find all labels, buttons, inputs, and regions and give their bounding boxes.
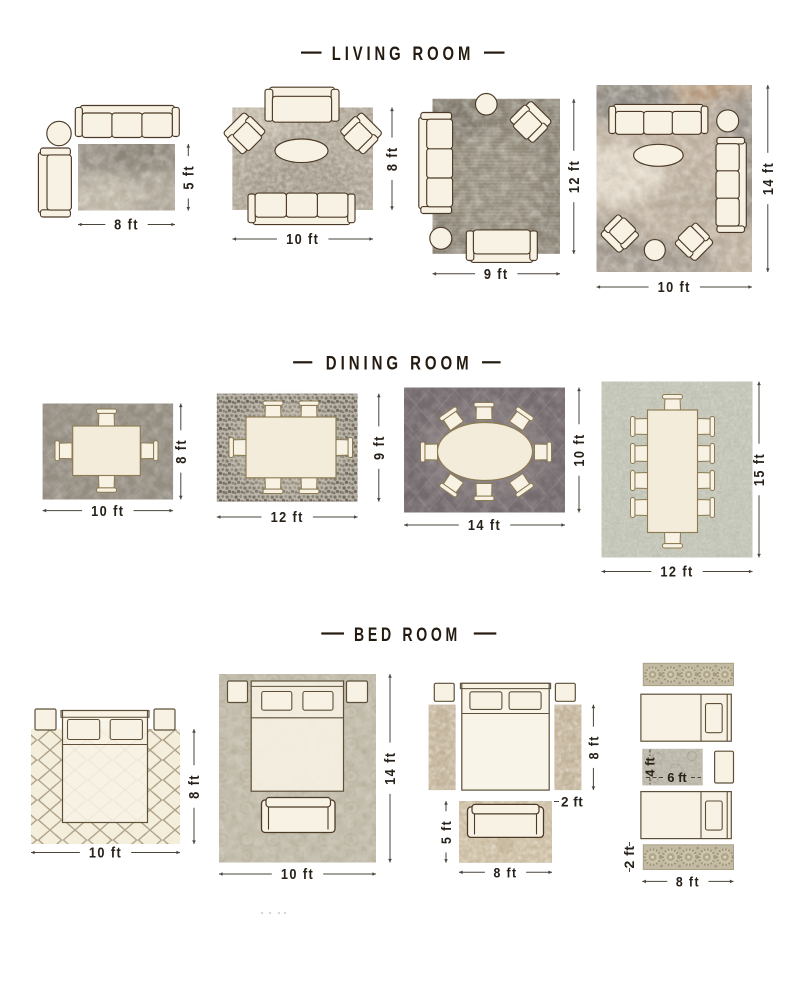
- svg-text:15 ft: 15 ft: [751, 453, 767, 486]
- svg-text:9 ft: 9 ft: [484, 266, 509, 282]
- svg-text:5 ft: 5 ft: [438, 820, 454, 844]
- svg-text:14 ft: 14 ft: [468, 517, 501, 533]
- svg-text:8 ft: 8 ft: [186, 774, 202, 799]
- svg-text:10 ft: 10 ft: [571, 433, 587, 466]
- svg-text:10 ft: 10 ft: [286, 231, 319, 247]
- svg-text:10 ft: 10 ft: [281, 866, 314, 882]
- svg-text:8 ft: 8 ft: [676, 874, 700, 890]
- svg-text:LIVING ROOM: LIVING ROOM: [332, 43, 474, 64]
- svg-text:10 ft: 10 ft: [89, 845, 122, 861]
- svg-text:8 ft: 8 ft: [493, 865, 517, 881]
- svg-text:DINING ROOM: DINING ROOM: [326, 353, 473, 374]
- svg-text:14 ft: 14 ft: [760, 162, 776, 195]
- svg-text:12 ft: 12 ft: [660, 564, 693, 580]
- svg-text:5 ft: 5 ft: [181, 165, 197, 190]
- svg-text:6 ft: 6 ft: [667, 770, 687, 785]
- svg-text:8 ft: 8 ft: [173, 439, 189, 464]
- svg-text:12 ft: 12 ft: [271, 509, 304, 525]
- svg-text:2 ft: 2 ft: [561, 795, 583, 810]
- svg-text:10 ft: 10 ft: [91, 503, 124, 519]
- svg-text:12 ft: 12 ft: [566, 160, 582, 193]
- svg-text:2 ft: 2 ft: [621, 846, 637, 869]
- svg-text:14 ft: 14 ft: [382, 752, 398, 785]
- svg-text:8 ft: 8 ft: [384, 146, 400, 171]
- svg-text:BED ROOM: BED ROOM: [354, 624, 461, 646]
- svg-text:8 ft: 8 ft: [586, 735, 602, 759]
- svg-text:8 ft: 8 ft: [114, 217, 139, 233]
- svg-text:9 ft: 9 ft: [371, 435, 387, 460]
- svg-text:10 ft: 10 ft: [658, 279, 691, 295]
- svg-text:4 ft: 4 ft: [643, 757, 658, 777]
